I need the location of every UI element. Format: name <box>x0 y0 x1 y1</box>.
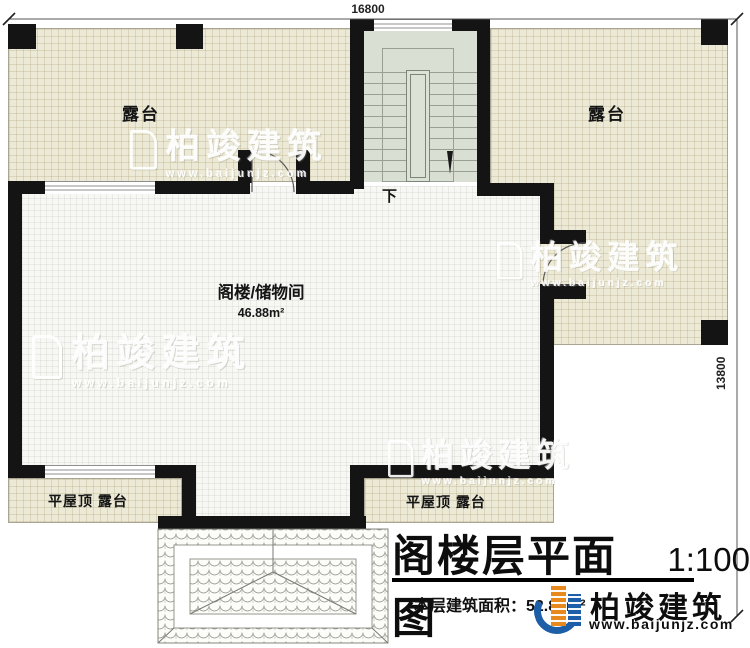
stair-down-arrow <box>447 151 453 174</box>
flat-roof-terrace-left-label: 平屋顶 露台 <box>48 491 128 511</box>
brand-url: www.baijunjz.com <box>589 616 734 632</box>
terrace-left-label: 露台 <box>122 100 160 125</box>
brand-logo-building-orange <box>551 584 566 626</box>
brand-logo-building-blue <box>568 594 581 626</box>
dimension-right-label: 13800 <box>714 346 728 390</box>
door-top-swing <box>252 150 294 192</box>
drawing-scale: 1:100 <box>667 541 750 579</box>
door-right-swing <box>543 243 585 285</box>
attic-room-label-group: 阁楼/储物间 46.88m² <box>200 279 322 320</box>
stair-down-label: 下 <box>382 185 397 206</box>
dimension-top-label: 16800 <box>340 2 396 16</box>
brand-logo-icon <box>534 582 586 634</box>
attic-room-label: 阁楼/储物间 <box>200 279 322 303</box>
attic-room-area: 46.88m² <box>200 306 322 320</box>
porch-roof <box>158 529 388 643</box>
terrace-right-label: 露台 <box>588 100 626 125</box>
floor-plan-canvas: 柏竣建筑 www.baijunjz.com 柏竣建筑 www.baijunjz.… <box>0 0 750 648</box>
flat-roof-terrace-right-label: 平屋顶 露台 <box>406 492 486 512</box>
